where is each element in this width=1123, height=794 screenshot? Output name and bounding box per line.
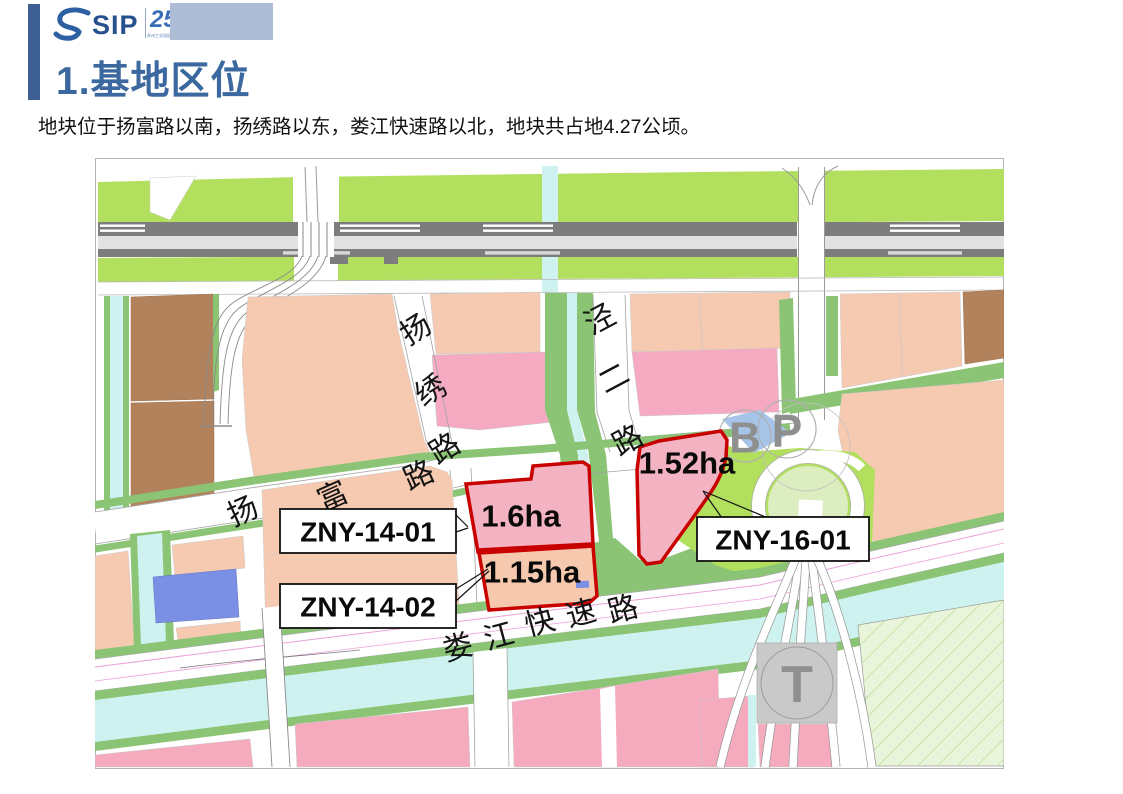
slide: { "slide": { "logo": { "brand": "SIP", "… xyxy=(0,0,1123,794)
page-title: 1.基地区位 xyxy=(56,50,251,106)
parcel xyxy=(630,292,790,352)
road-gap xyxy=(799,168,824,224)
area-label-14-02: 1.15ha xyxy=(484,555,581,590)
logo-divider xyxy=(145,8,146,38)
hatched-area xyxy=(858,600,1004,766)
green-strip xyxy=(779,298,796,414)
sip-logo-text: SIP xyxy=(92,10,139,41)
parcel xyxy=(432,352,562,430)
plot-code-14-01: ZNY-14-01 xyxy=(300,517,435,548)
parking-letter: P xyxy=(772,405,803,457)
sip-logo-icon xyxy=(52,6,94,46)
transit-letter: T xyxy=(781,656,813,714)
parcel xyxy=(632,348,779,416)
parcel xyxy=(430,292,540,354)
title-accent-bar xyxy=(28,4,40,100)
area-label-14-01: 1.6ha xyxy=(481,499,561,534)
road-gap xyxy=(293,174,339,224)
green-strip xyxy=(826,296,838,376)
transit-station-icon: T xyxy=(757,643,837,723)
area-label-16-01: 1.52ha xyxy=(639,446,736,481)
logo-color-block xyxy=(170,3,273,40)
site-map-container: T B P 扬 绣 路 扬 富 路 泾 二 路 娄 江 快 速 路 1.6ha … xyxy=(95,158,1004,770)
site-map: T B P 扬 绣 路 扬 富 路 泾 二 路 娄 江 快 速 路 1.6ha … xyxy=(95,158,1004,770)
plot-code-16-01: ZNY-16-01 xyxy=(715,525,850,556)
parcel xyxy=(963,290,1004,364)
site-description: 地块位于扬富路以南，扬绣路以东，娄江快速路以北，地块共占地4.27公顷。 xyxy=(38,110,700,139)
road-gap xyxy=(799,257,824,283)
plot-code-14-02: ZNY-14-02 xyxy=(300,592,435,623)
